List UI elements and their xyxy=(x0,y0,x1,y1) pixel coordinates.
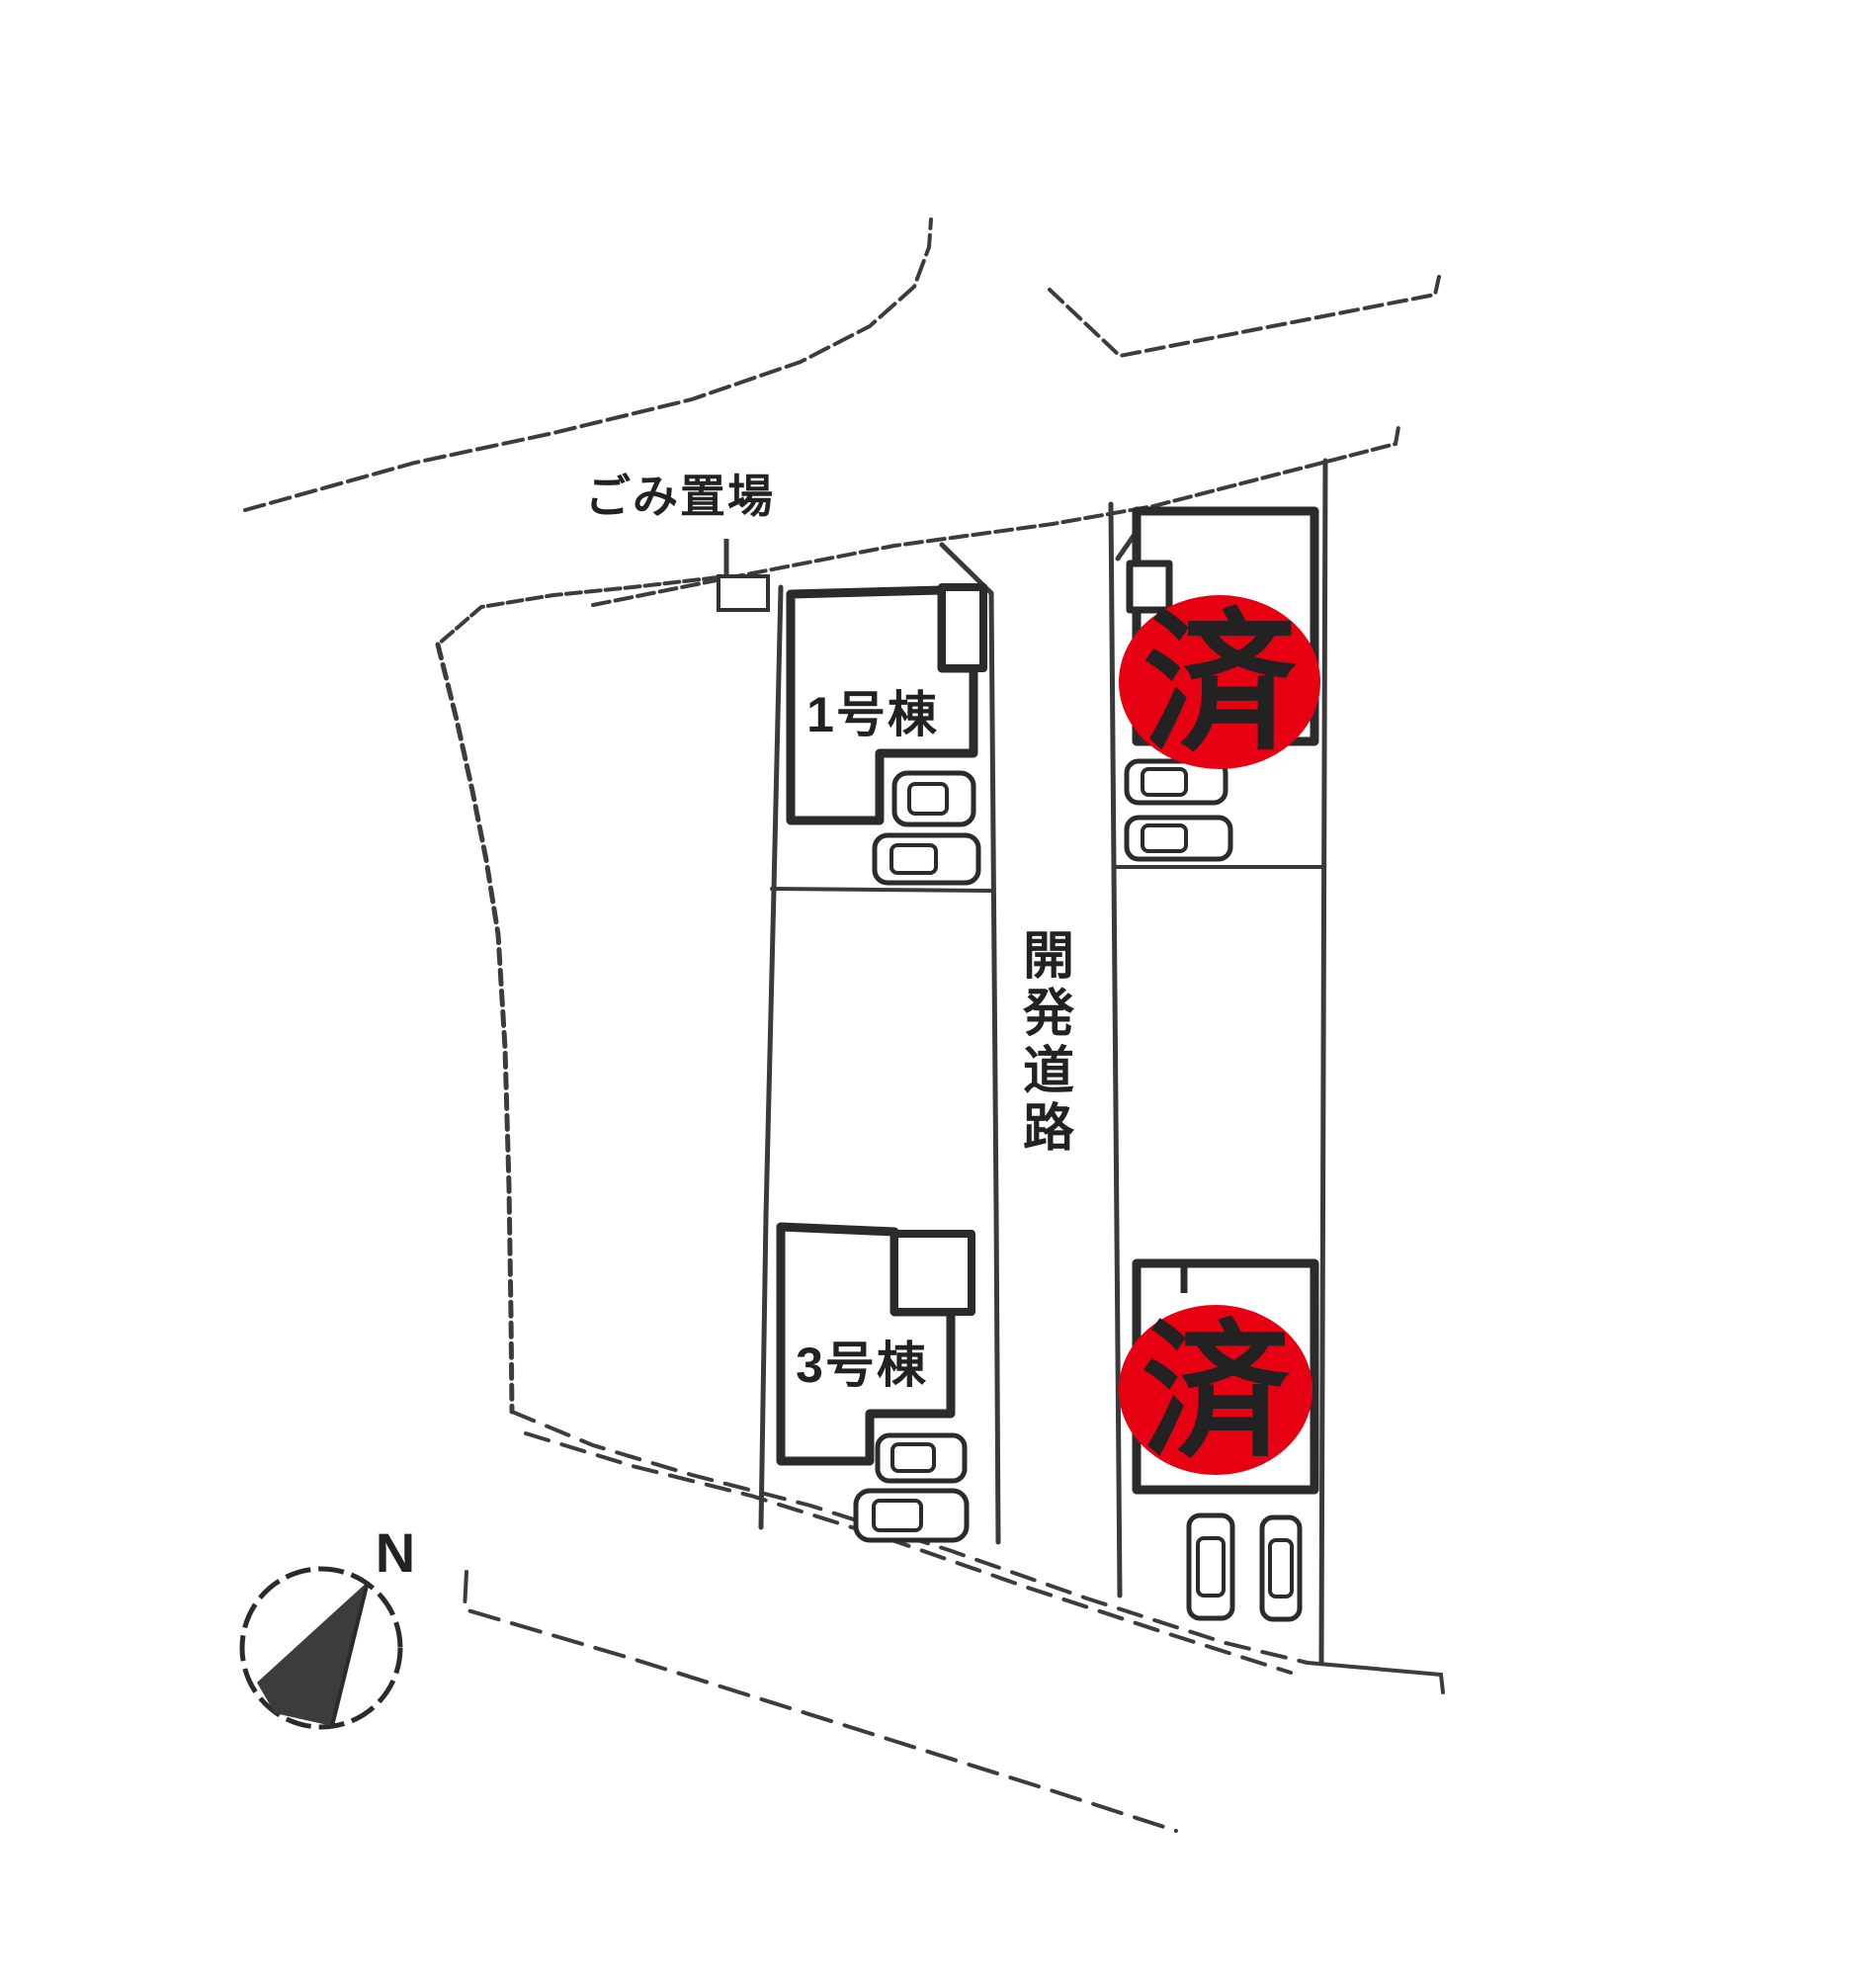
lot-right-east-edge xyxy=(1321,461,1325,1663)
building-3-porch xyxy=(894,1234,972,1312)
sold-stamp-2-label: 済 xyxy=(1142,1309,1291,1475)
site-plan-page: ごみ置場 1号棟 3号棟 xyxy=(0,0,1862,1983)
site-plan-svg: ごみ置場 1号棟 3号棟 xyxy=(0,0,1862,1983)
road-edge-bottom-right xyxy=(1308,1663,1443,1692)
parking-stall-2-cab xyxy=(1270,1540,1292,1597)
building-2-car-2-cab xyxy=(1143,825,1186,851)
road-label: 開発道路 xyxy=(1023,928,1076,1158)
building-1-porch xyxy=(942,587,983,668)
garbage-label: ごみ置場 xyxy=(585,471,775,522)
building-1-car-1-cab xyxy=(909,784,947,814)
road-line-lower xyxy=(465,1572,1176,1831)
lot-right-west-edge xyxy=(1111,504,1120,1596)
building-3-car-2-cab xyxy=(874,1501,921,1530)
sold-stamp-2: 済 xyxy=(1119,1305,1312,1475)
compass-north-label: N xyxy=(376,1521,415,1584)
road-line-top-right-corner xyxy=(1050,277,1439,356)
lot-left-east-edge xyxy=(991,593,998,1542)
road-line-top-left xyxy=(245,219,931,510)
garbage-station-box xyxy=(719,576,768,610)
building-1-car-2-cab xyxy=(891,845,936,873)
sold-stamp-1-label: 済 xyxy=(1143,598,1298,769)
building-1-label: 1号棟 xyxy=(806,687,939,742)
parking-stall-1-cab xyxy=(1198,1538,1224,1596)
site-boundary-west xyxy=(438,645,512,1412)
building-3-car-1-cab xyxy=(892,1444,934,1471)
compass: N xyxy=(242,1521,415,1727)
building-2-car-1-cab xyxy=(1143,769,1186,795)
building-3-label: 3号棟 xyxy=(796,1338,928,1393)
lot-left-divider xyxy=(772,889,992,891)
sold-stamp-1: 済 xyxy=(1119,595,1320,769)
